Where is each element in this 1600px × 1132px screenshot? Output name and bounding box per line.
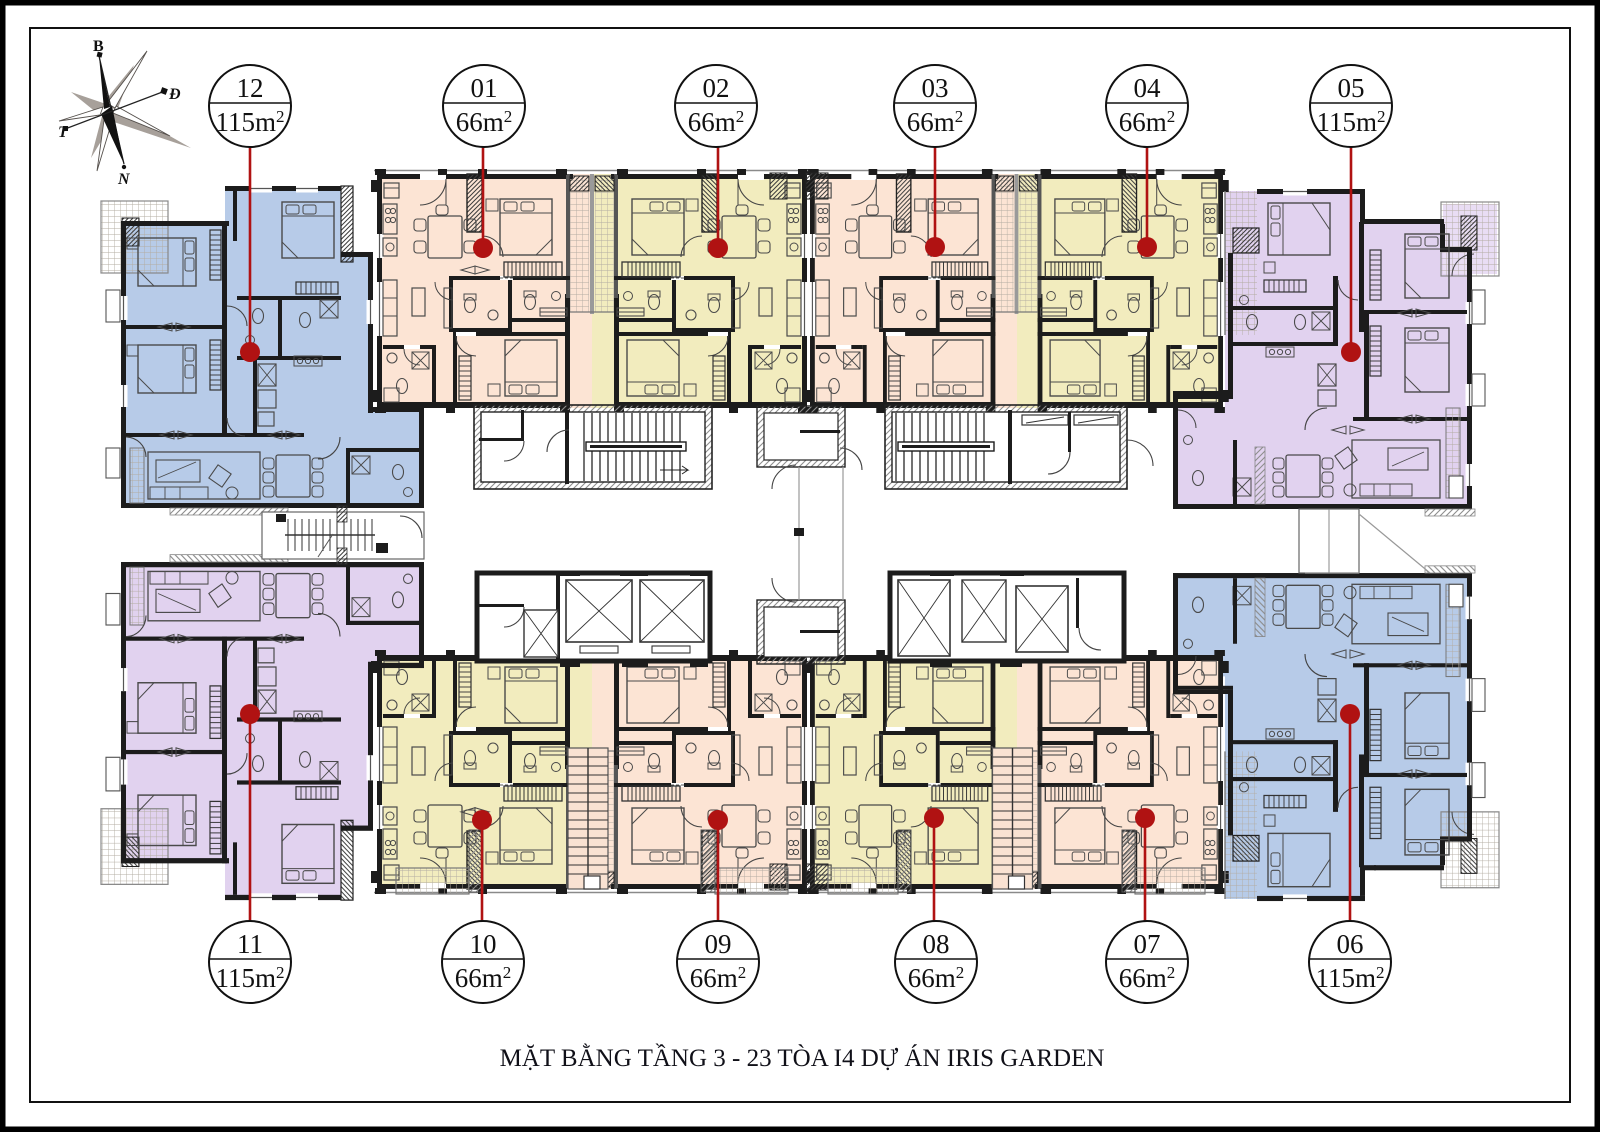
svg-text:115m2: 115m2 — [1316, 963, 1385, 993]
svg-text:01: 01 — [471, 73, 498, 103]
svg-text:N: N — [117, 171, 131, 188]
svg-text:09: 09 — [705, 929, 732, 959]
svg-text:115m2: 115m2 — [216, 107, 285, 137]
svg-text:07: 07 — [1134, 929, 1161, 959]
svg-text:MẶT BẰNG TẦNG 3 - 23 TÒA I4 DỰ: MẶT BẰNG TẦNG 3 - 23 TÒA I4 DỰ ÁN IRIS G… — [500, 1043, 1105, 1072]
svg-text:Đ: Đ — [168, 86, 181, 103]
svg-text:10: 10 — [470, 929, 497, 959]
svg-text:03: 03 — [922, 73, 949, 103]
svg-text:115m2: 115m2 — [216, 963, 285, 993]
svg-text:T: T — [58, 124, 69, 141]
svg-text:05: 05 — [1338, 73, 1365, 103]
svg-text:B: B — [93, 38, 104, 55]
svg-text:12: 12 — [237, 73, 264, 103]
svg-text:02: 02 — [703, 73, 730, 103]
svg-text:11: 11 — [237, 929, 263, 959]
svg-text:115m2: 115m2 — [1317, 107, 1386, 137]
svg-text:06: 06 — [1337, 929, 1364, 959]
svg-text:04: 04 — [1134, 73, 1162, 103]
svg-text:08: 08 — [923, 929, 950, 959]
